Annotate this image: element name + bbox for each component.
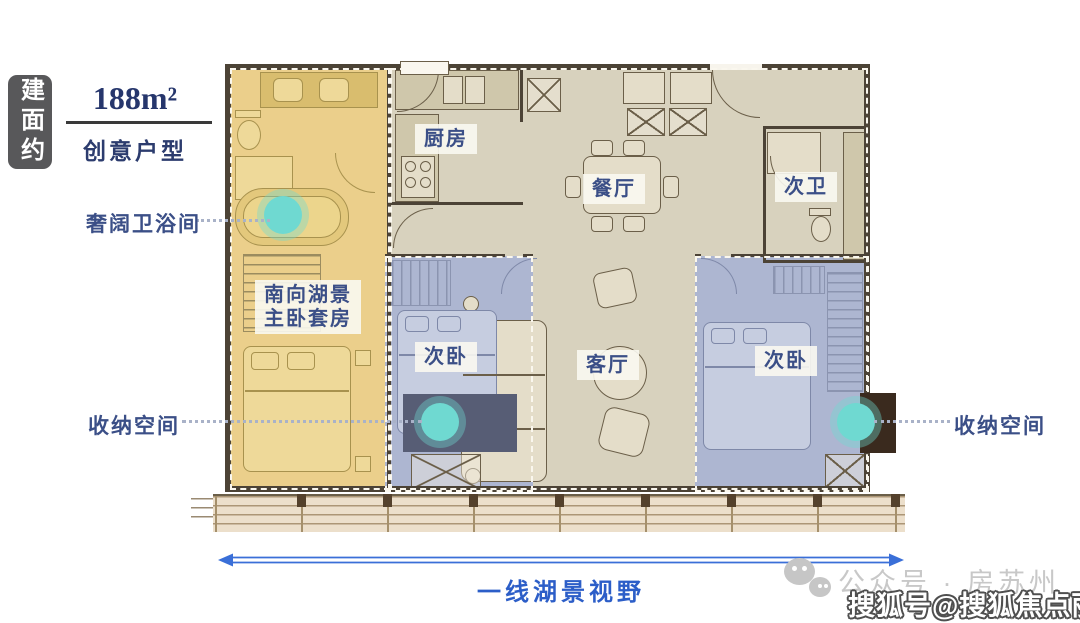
suite-nightstand-2 (355, 456, 371, 472)
window-top (400, 61, 449, 75)
balcony-post (813, 494, 822, 507)
suite-nightstand-1 (355, 350, 371, 366)
leader-line-storage-right (874, 420, 950, 423)
sofa-cushion-line (463, 374, 545, 376)
closet-xbox-hall-1 (627, 108, 665, 136)
suite-toilet-tank (235, 110, 261, 118)
callout-storage-left: 收纳空间 (88, 410, 180, 440)
stove-burner (405, 161, 416, 172)
wall-bedroom-right-top2 (731, 254, 869, 257)
stove-burner (420, 161, 431, 172)
suite-pillow-2 (287, 352, 315, 370)
balcony-post (297, 494, 306, 507)
sohu-watermark-text: 搜狐号@搜狐焦点丽水站 (848, 584, 1080, 623)
kitchen-sink-1 (443, 76, 463, 104)
wall-bedroom-mid-top2 (523, 254, 533, 257)
dining-chair (591, 140, 613, 156)
bath2-vanity (843, 132, 865, 260)
bedroom-mid-pillow (405, 316, 429, 332)
floor-plan: 厨房 餐厅 次卫 南向湖景 主卧套房 次卧 客厅 次卧 (215, 58, 907, 534)
area-size-title: 188m² (58, 80, 212, 117)
dining-chair (565, 176, 581, 198)
balcony-stub (191, 498, 213, 525)
bedroom-right-wardrobe-hatch (827, 272, 863, 392)
leader-line-storage-left (182, 420, 422, 423)
dining-chair (591, 216, 613, 232)
bedroom-right-hatch-top (773, 266, 825, 294)
wall-bedroom-right-top1 (695, 254, 701, 257)
suite-pillow-1 (251, 352, 279, 370)
wechat-icon (784, 558, 834, 598)
room-label-kitchen: 厨房 (415, 124, 477, 154)
closet-xbox-bedroom-mid (411, 454, 481, 490)
bedroom-right-pillow (711, 328, 735, 344)
wall-suite-divider (387, 64, 391, 492)
stove-burner (405, 177, 416, 188)
highlight-dot-storage-mid (421, 403, 459, 441)
balcony-post (383, 494, 392, 507)
room-label-bedroom-right: 次卧 (755, 346, 817, 376)
closet-xbox-entry (527, 78, 561, 112)
suite-toilet (237, 120, 261, 150)
stove-burner (420, 177, 431, 188)
balcony-line (215, 496, 217, 532)
dining-chair (623, 216, 645, 232)
balcony-post (891, 494, 900, 507)
closet-xbox-bedroom-right (825, 454, 865, 488)
room-label-bedroom-mid: 次卧 (415, 342, 477, 372)
wall-kitchen-bottom (391, 202, 523, 205)
room-label-second-bath: 次卫 (775, 172, 837, 202)
wall-bath2-top (763, 126, 868, 129)
master-suite-line2: 主卧套房 (264, 308, 352, 330)
wall-left (225, 64, 231, 492)
leader-line-bathroom (196, 219, 270, 222)
wall-bath2-left (763, 126, 766, 263)
hall-closet-1 (623, 72, 665, 104)
highlight-dot-bathtub (264, 196, 302, 234)
room-label-dining: 餐厅 (583, 174, 645, 204)
closet-xbox-hall-2 (669, 108, 707, 136)
bedroom-right-pillow (743, 328, 767, 344)
wall-bottom (225, 486, 870, 492)
balcony-post (555, 494, 564, 507)
wall-bath2-bottom (763, 260, 868, 263)
suite-sink-1 (273, 78, 303, 102)
balcony-strip (213, 494, 905, 532)
kitchen-sink-2 (465, 76, 485, 104)
dining-chair (663, 176, 679, 198)
bath2-toilet (811, 216, 831, 242)
room-label-living: 客厅 (577, 350, 639, 380)
layout-subtitle: 创意户型 (58, 132, 212, 166)
balcony-post (641, 494, 650, 507)
area-badge: 建面约 (8, 75, 52, 169)
highlight-dot-storage-right (837, 403, 875, 441)
suite-sink-2 (319, 78, 349, 102)
suite-bed-line (245, 390, 349, 392)
hall-closet-2 (670, 72, 712, 104)
wall-kitchen-right (520, 64, 523, 122)
bath2-toilet-tank (809, 208, 831, 216)
balcony-post (727, 494, 736, 507)
wall-bedroom-mid-top (385, 254, 505, 257)
balcony-post (469, 494, 478, 507)
callout-storage-right: 收纳空间 (954, 410, 1046, 440)
wall-top (225, 64, 870, 70)
room-label-master-suite: 南向湖景 主卧套房 (255, 280, 361, 334)
bedroom-mid-pillow (437, 316, 461, 332)
header-divider (66, 121, 212, 124)
callout-bathroom: 奢阔卫浴间 (86, 208, 201, 238)
master-suite-line1: 南向湖景 (264, 284, 352, 306)
bedroom-mid-wardrobe-hatch (391, 260, 451, 306)
dining-chair (623, 140, 645, 156)
